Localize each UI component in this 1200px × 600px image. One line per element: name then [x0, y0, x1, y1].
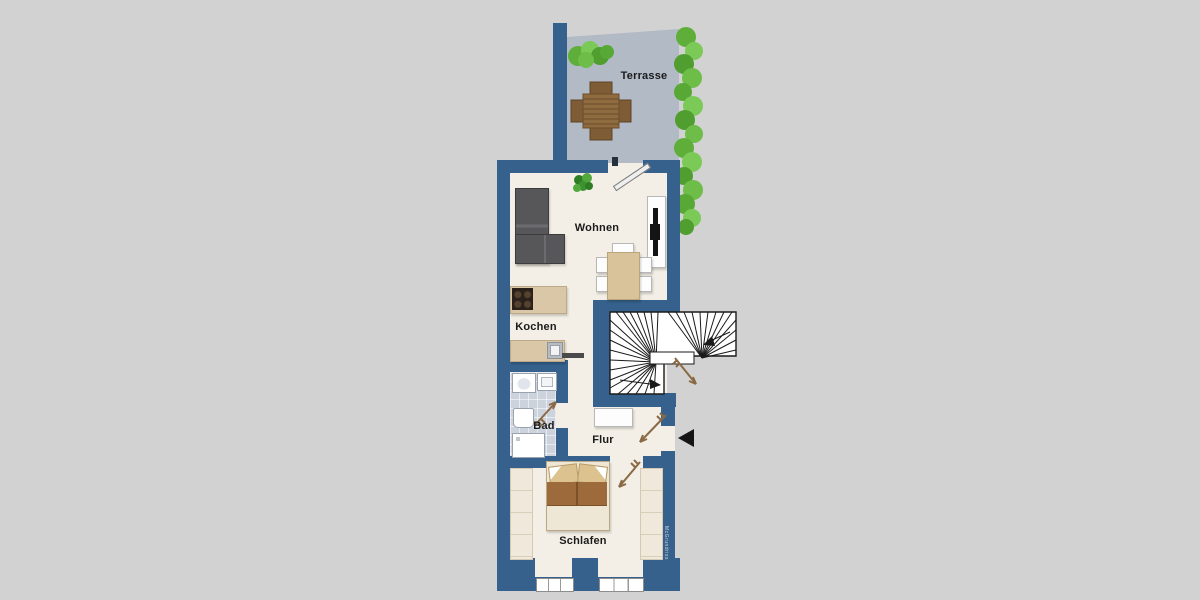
- room-label-bad: Bad: [524, 420, 564, 432]
- room-label-flur: Flur: [578, 434, 628, 446]
- wall-flur-schlafen-right: [643, 456, 661, 468]
- watermark-text: McGrundriss: [663, 526, 669, 570]
- bedroom-window-right: [599, 578, 644, 592]
- bed-blanket: [547, 482, 607, 506]
- wall-bottom-pier-middle: [572, 558, 598, 591]
- dining-chair: [639, 257, 652, 273]
- wall-right-upper: [667, 160, 680, 312]
- shower: [512, 433, 545, 458]
- sofa-horizontal-section: [515, 234, 565, 264]
- sink-basin: [541, 377, 553, 387]
- room-label-kochen: Kochen: [506, 321, 566, 333]
- bedroom-window-left: [536, 578, 574, 592]
- dining-chair: [639, 276, 652, 292]
- room-label-schlafen: Schlafen: [548, 535, 618, 547]
- wall-bad-right-lower: [556, 428, 568, 456]
- door-arrow-stairs-icon: [671, 354, 701, 388]
- kitchen-sliding-door: [562, 353, 584, 358]
- floor-plan: Terrasse Wohnen Kochen Bad Flur Schlafen…: [0, 0, 1200, 600]
- potted-plant-icon: [571, 170, 595, 196]
- door-arrow-schlafen-icon: [614, 458, 644, 492]
- wardrobe-left: [510, 468, 533, 560]
- shower-drain: [516, 437, 520, 441]
- washbasin: [512, 373, 536, 393]
- entrance-arrow-icon: [678, 429, 694, 447]
- kitchen-sink-basin: [550, 345, 560, 356]
- tv-icon-center: [650, 224, 660, 240]
- wall-terrace-left: [553, 23, 567, 163]
- kitchen-sink-icon: [547, 342, 563, 359]
- bush-icon: [566, 38, 614, 70]
- door-arrow-entry-icon: [634, 410, 670, 448]
- room-label-terrasse: Terrasse: [614, 70, 674, 82]
- door-jamb-mark: [612, 157, 618, 166]
- wall-bottom-pier-left: [503, 558, 535, 591]
- room-label-wohnen: Wohnen: [567, 222, 627, 234]
- hall-sideboard: [594, 408, 633, 427]
- stove-icon: [512, 288, 533, 310]
- sink: [537, 373, 557, 391]
- garden-table-set: [570, 80, 632, 142]
- wall-left: [497, 160, 510, 591]
- dining-table: [607, 252, 640, 300]
- wall-bottom-pier-right: [643, 558, 680, 591]
- bed: [546, 461, 610, 531]
